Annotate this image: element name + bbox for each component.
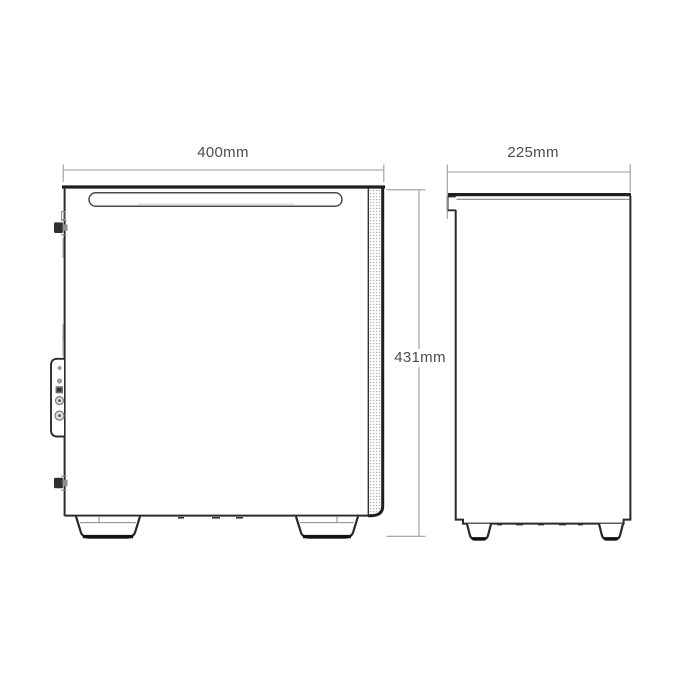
depth-dimension-label: 225mm xyxy=(473,144,593,162)
front-foot-left xyxy=(467,524,491,540)
front-body-outline xyxy=(456,196,631,524)
depth-dimension-line xyxy=(447,165,630,220)
side-view-drawing xyxy=(51,187,385,538)
io-led-dot xyxy=(58,366,62,370)
io-power-button-pin xyxy=(58,414,61,417)
io-port-round-upper-pin xyxy=(58,399,61,402)
thumbscrew-bottom-shaft xyxy=(63,480,68,487)
thumbscrew-bottom-knob xyxy=(54,478,63,489)
io-panel xyxy=(51,341,64,437)
io-audio-jack xyxy=(57,378,62,383)
front-foot-right xyxy=(599,524,623,540)
front-view-drawing xyxy=(448,195,631,540)
front-top-left-tab xyxy=(448,197,456,211)
width-dimension-line xyxy=(63,165,384,183)
height-dimension-label: 431mm xyxy=(390,349,450,367)
case-line-drawing xyxy=(0,0,700,700)
side-foot-left-outline xyxy=(76,517,140,538)
pc-case-dimension-diagram: 400mm 225mm 431mm xyxy=(0,0,700,700)
thumbscrew-top-shaft xyxy=(63,224,68,231)
thumbscrew-top-knob xyxy=(54,222,63,233)
side-foot-right-outline xyxy=(296,517,358,538)
side-foot-right xyxy=(296,517,358,538)
width-dimension-label: 400mm xyxy=(163,144,283,162)
front-mesh-strip xyxy=(369,189,383,515)
side-foot-left xyxy=(76,517,140,538)
io-usb-port-inner xyxy=(57,388,61,392)
dimension-lines xyxy=(63,165,630,537)
